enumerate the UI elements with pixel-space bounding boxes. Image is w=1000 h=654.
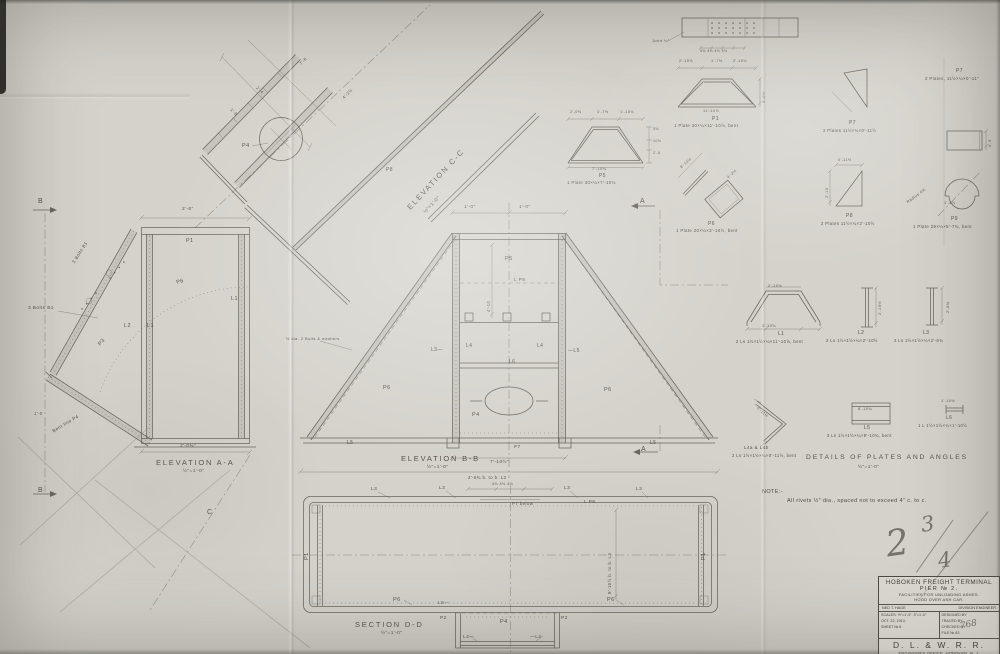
paper-edge-top-shadow: [0, 0, 1000, 4]
drawing-annotation: 7'-10⅛: [592, 167, 607, 171]
drawing-annotation: L4a & L4b: [744, 446, 769, 451]
drawing-annotation: L6: [946, 416, 952, 421]
drawing-annotation: P6: [708, 222, 715, 227]
sheet-number: SHEET № 6: [881, 625, 937, 631]
drawing-description-2: HOOD OVER ASH CAR.: [879, 597, 999, 602]
drawing-annotation: 1 Plate 30×¼×7'-10⅛: [567, 181, 616, 185]
drawing-annotation: 1'-7½: [597, 111, 608, 115]
drawing-annotation: 0'-9: [989, 139, 993, 147]
drawing-annotation: 2'-10⅛: [733, 60, 747, 64]
pencil-mark-whole: 2: [884, 525, 912, 564]
drawing-annotation: 1'-4⅞: [944, 202, 955, 206]
drawing-annotation: ½ dia. 2 Bolts & washers: [286, 337, 340, 341]
pencil-mark-numerator: 3: [920, 513, 936, 536]
drawing-annotation: L1: [778, 332, 784, 337]
drawing-annotation: P4: [242, 144, 250, 150]
drawing-annotation: 2 Ls 1½×1½×¼×11'-10⅞, bent: [736, 340, 803, 344]
drawing-annotation: Joint ¼″: [652, 39, 670, 43]
drawing-annotation: —L5: [568, 349, 580, 354]
title-block: HOBOKEN FREIGHT TERMINAL PIER № 2. FACIL…: [878, 576, 1000, 654]
drawing-annotation: A: [641, 446, 646, 453]
title-block-left-cell: SCALES: ½″=1'-0″, 3″=1'-0″ OCT. 22, 1913…: [879, 612, 939, 638]
drawing-annotation: L P8: [584, 501, 595, 506]
drawing-annotation: L1: [147, 324, 154, 330]
drawing-annotation: L4: [466, 344, 472, 349]
drawing-annotation: 2 Plates, 11½×¼×0'-11″: [925, 77, 979, 81]
drawing-annotation: 2'-10⅛: [768, 285, 782, 289]
drawing-annotation: B: [38, 198, 43, 205]
view-scale-section-dd: ½″=1'-0″: [381, 632, 402, 637]
title-block-grid: SCALES: ½″=1'-0″, 3″=1'-0″ OCT. 22, 1913…: [879, 611, 999, 638]
drawing-annotation: 2'-10: [826, 188, 830, 198]
drawing-annotation: 2 Ls 1½×1½×¼×2'-10½: [826, 339, 878, 343]
engineer-title: DIVISION ENGINEER: [958, 606, 996, 610]
drawing-annotation: 3 Ls 1½×1½×¼×8'-10¾, bent: [827, 434, 892, 438]
note-text: All rivets ½″ dia., spaced not to exceed…: [787, 498, 927, 504]
drawing-annotation: 4⅛ 4⅛ 4⅛ 4⅛: [700, 50, 727, 54]
drawing-annotation: 1'-10½: [941, 400, 955, 404]
drawing-annotation: L6: [509, 360, 515, 365]
drawing-annotation: 8'-10½ b. to b. L3: [608, 553, 612, 594]
drawing-annotation: 3'-10⅛: [762, 325, 776, 329]
drawing-annotation: P1: [186, 239, 194, 245]
elevation-bb-view: [298, 203, 728, 478]
drawing-annotation: —L4: [530, 636, 541, 641]
paper-edge-bottom-shadow: [0, 649, 1000, 654]
drawing-annotation: 2 Plates 11½×¼×2'-10½: [821, 222, 875, 226]
drawing-annotation: 3 Bolts B1: [28, 307, 54, 312]
drawing-annotation: P9: [951, 217, 958, 222]
view-title-elevation-bb: ELEVATION B-B: [401, 455, 480, 463]
drawing-annotation: P5: [599, 174, 606, 179]
drawing-annotation: 4⅛ 4⅛ 4⅛: [492, 483, 513, 487]
drawing-annotation: 1'-7½: [711, 60, 722, 64]
drawing-annotation: L5: [347, 441, 353, 446]
view-title-details: DETAILS OF PLATES AND ANGLES: [806, 455, 968, 462]
drawing-annotation: 2'-10⅛: [679, 60, 693, 64]
drawing-annotation: P6: [604, 388, 612, 394]
title-block-right-cell: DESIGNED BY TRACED BY CHECKED BY FILE № …: [939, 612, 1000, 638]
view-title-elevation-aa: ELEVATION A-A: [156, 459, 235, 467]
drawing-annotation: L3: [636, 488, 642, 493]
view-title-section-dd: SECTION D-D: [355, 621, 424, 629]
drawing-annotation: P1: [702, 552, 708, 560]
drawing-annotation: A: [640, 198, 645, 205]
drawing-annotation: 2'-6¾ b. to b. L3: [468, 476, 506, 480]
drawing-annotation: 1'-0″: [464, 206, 476, 211]
drawing-annotation: L3—: [431, 348, 443, 353]
drawing-annotation: 3⅛: [653, 128, 659, 132]
view-scale-elevation-aa: ½″=1'-0″: [183, 470, 204, 475]
drawing-annotation: L4—: [463, 636, 474, 641]
drawing-annotation: P4: [500, 620, 508, 626]
drawing-annotation: L1: [231, 297, 238, 303]
engineer-name: NED T. HAGE: [882, 606, 906, 610]
drawing-annotation: L2: [124, 324, 131, 330]
drawing-annotation: L3: [564, 487, 570, 492]
drawing-annotation: 3'-0½: [763, 92, 767, 103]
view-scale-details: ½″=1'-0″: [858, 466, 879, 471]
drawing-annotation: 1 Plate 20×¼×3'-10½, bent: [676, 229, 738, 233]
drawing-annotation: 1 L 1½×1½×¼×1'-10½: [918, 424, 967, 428]
drawing-annotation: L3: [439, 487, 445, 492]
plate-details: [566, 18, 988, 446]
drawing-annotation: L2: [858, 331, 864, 336]
drawing-annotation: 2'-10½: [879, 301, 883, 315]
drawing-annotation: 2 Plates 11½×¼×0'-11½: [823, 129, 876, 133]
drawing-annotation: P8: [846, 214, 853, 219]
drawing-sheet: P4P87'-64'-2½2'-41'-8BB2'-6″P1P6L2L1L13 …: [0, 0, 1000, 654]
drawing-annotation: 10¾: [653, 140, 661, 144]
drawing-annotation: P6: [607, 598, 615, 604]
drawing-annotation: 1'-0″: [519, 206, 531, 211]
drawing-annotation: 8'-10¾: [858, 408, 872, 412]
drawing-annotation: 2'-0⅜: [570, 111, 581, 115]
drawing-annotation: P7: [514, 446, 521, 451]
drawing-annotation: L4: [537, 344, 543, 349]
drawing-annotation: P1: [305, 552, 311, 560]
drawing-annotation: 7'-10½″: [490, 461, 509, 466]
drawing-annotation: 1 Plate 29×¼×5'-7¾, bent: [913, 225, 972, 229]
drawing-annotation: 11'-10⅞: [703, 110, 719, 114]
drawing-annotation: P2: [561, 617, 568, 622]
drawing-annotation: P8: [386, 168, 393, 173]
view-scale-elevation-bb: ½″=1'-0″: [427, 466, 448, 471]
drawing-annotation: 2'-6¾: [947, 302, 951, 313]
drawing-annotation: C: [207, 509, 212, 516]
drawing-annotation: P4: [472, 413, 480, 419]
drawing-annotation: P5: [505, 257, 513, 263]
paper-edge-right-shadow: [996, 0, 1000, 654]
drawing-annotation: L6—: [438, 602, 449, 607]
drawing-annotation: P1: [712, 117, 719, 122]
drawing-annotation: 1 Plate 30×¼×11'-10⅞, bent: [674, 124, 738, 128]
drawing-annotation: 1'-10⅛: [620, 111, 634, 115]
note-heading: NOTE:-: [762, 489, 783, 495]
drawing-annotation: P2: [440, 617, 447, 622]
drawing-annotation: P7: [849, 121, 856, 126]
drawing-annotation: 2'-0⅜″: [180, 445, 196, 450]
drawing-annotation: P6: [393, 598, 401, 604]
drawing-annotation: 2 Ls 1½×1½×¼×0'-11½, bent: [732, 454, 796, 458]
drawing-annotation: 0'-11½: [838, 159, 852, 163]
drawing-annotation: P7: [956, 69, 963, 74]
drawing-annotation: 1'-0: [34, 412, 42, 416]
scan-edge-dark: [0, 0, 6, 94]
drawing-annotation: P7 below: [512, 502, 533, 506]
drawing-annotation: P6: [383, 386, 391, 392]
railroad-name: D. L. & W. R. R.: [879, 638, 999, 652]
elevation-cc-view: [195, 5, 544, 305]
drawing-annotation: 2'-6″: [182, 208, 194, 213]
engineer-row: NED T. HAGE DIVISION ENGINEER: [879, 604, 999, 611]
drawing-annotation: L5: [650, 441, 656, 446]
drawing-annotation: B: [38, 487, 43, 494]
drawing-title: HOBOKEN FREIGHT TERMINAL: [879, 577, 999, 586]
drawing-annotation: 2 Ls 1½×1½×¼×2'-6¾: [894, 339, 943, 343]
drawing-annotation: L3: [371, 488, 377, 493]
drawing-annotation: L5: [864, 426, 870, 431]
drawing-annotation: L P8: [514, 279, 525, 284]
drawing-annotation: L3: [923, 331, 929, 336]
drawing-annotation: 2'-6: [653, 152, 660, 156]
drawing-annotation: 4'-10: [487, 301, 491, 312]
